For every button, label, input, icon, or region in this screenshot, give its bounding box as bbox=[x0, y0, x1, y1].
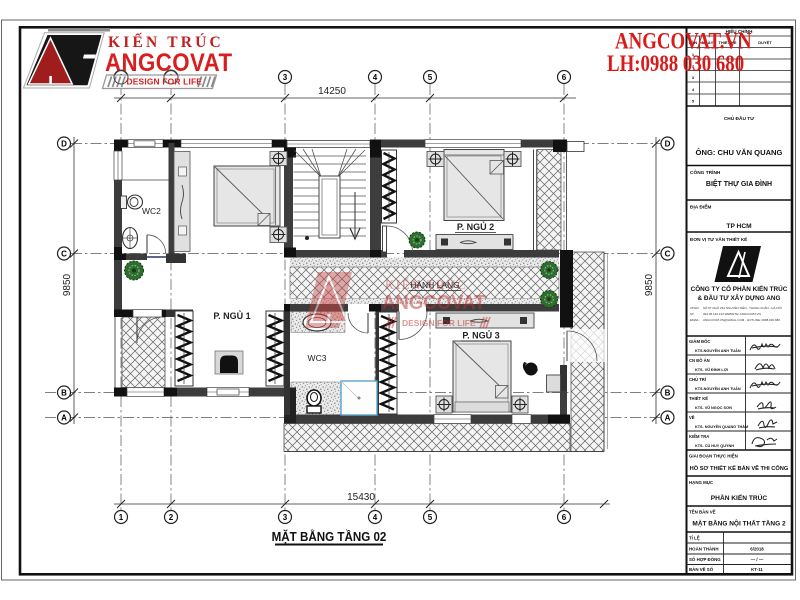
svg-text:5: 5 bbox=[428, 513, 433, 522]
svg-text:5: 5 bbox=[428, 73, 433, 82]
svg-text:KTS. CÙ HUY QUỲNH: KTS. CÙ HUY QUỲNH bbox=[695, 443, 734, 448]
svg-text:DESIGN FOR LIFE: DESIGN FOR LIFE bbox=[402, 318, 476, 328]
svg-text:ĐƠN VỊ TƯ VẤN THIẾT KẾ: ĐƠN VỊ TƯ VẤN THIẾT KẾ bbox=[690, 236, 747, 242]
svg-text:C: C bbox=[61, 250, 67, 259]
svg-text:KTS.NGUYỄN ANH TUẤN: KTS.NGUYỄN ANH TUẤN bbox=[695, 348, 741, 353]
svg-text:B: B bbox=[665, 389, 671, 398]
svg-text:EMAIL:: EMAIL: bbox=[690, 318, 700, 322]
svg-text:P. NGỦ 2: P. NGỦ 2 bbox=[457, 221, 494, 232]
svg-text:D: D bbox=[665, 140, 671, 149]
svg-text:ANGCOVAT: ANGCOVAT bbox=[105, 50, 233, 77]
svg-text:3: 3 bbox=[283, 73, 288, 82]
svg-text:6: 6 bbox=[562, 73, 567, 82]
svg-text:KIỂM TRA: KIỂM TRA bbox=[689, 434, 709, 439]
svg-text:ĐỊA ĐIỂM: ĐỊA ĐIỂM bbox=[690, 204, 711, 211]
svg-text:9850: 9850 bbox=[644, 273, 655, 296]
svg-text:A: A bbox=[665, 414, 671, 423]
svg-text:DESIGN FOR LIFE: DESIGN FOR LIFE bbox=[127, 77, 203, 87]
svg-text:KTS. NGUYỄN QUANG THẮM: KTS. NGUYỄN QUANG THẮM bbox=[695, 424, 748, 429]
svg-text:KIẾN TRÚC: KIẾN TRÚC bbox=[108, 33, 224, 51]
svg-text:1: 1 bbox=[119, 513, 124, 522]
svg-text:VẼ: VẼ bbox=[689, 415, 695, 420]
svg-text:KTS. VŨ NGỌC SƠN: KTS. VŨ NGỌC SƠN bbox=[695, 405, 732, 410]
svg-text:9850: 9850 bbox=[62, 273, 73, 296]
svg-text:HẠNG MỤC: HẠNG MỤC bbox=[689, 480, 714, 485]
svg-text:CHỦ ĐẦU TƯ: CHỦ ĐẦU TƯ bbox=[724, 115, 754, 122]
svg-text:VPGD:: VPGD: bbox=[690, 306, 700, 310]
svg-text:WC3: WC3 bbox=[308, 353, 327, 363]
svg-text:BIỆT THỰ GIA ĐÌNH: BIỆT THỰ GIA ĐÌNH bbox=[706, 179, 772, 188]
svg-text:BẢN VẼ SỐ: BẢN VẼ SỐ bbox=[689, 567, 714, 572]
svg-text:CHỦ TRÌ: CHỦ TRÌ bbox=[689, 377, 706, 382]
svg-text:LH:0988 030 680: LH:0988 030 680 bbox=[607, 50, 744, 76]
svg-text:KTS.NGUYỄN ANH TUẤN: KTS.NGUYỄN ANH TUẤN bbox=[695, 386, 741, 391]
svg-text:14250: 14250 bbox=[318, 86, 346, 97]
svg-text:THIẾT KẾ: THIẾT KẾ bbox=[689, 396, 708, 401]
svg-text:A: A bbox=[61, 414, 67, 423]
svg-text:— / —: — / — bbox=[751, 557, 764, 562]
svg-text:4: 4 bbox=[373, 73, 378, 82]
svg-text:ANGCOVAT.VN@GMAIL.COM - HOTLIN: ANGCOVAT.VN@GMAIL.COM - HOTLINE: 0988.03… bbox=[703, 318, 780, 322]
svg-text:ST:: ST: bbox=[690, 312, 695, 316]
svg-text:CN ĐỒ ÁN: CN ĐỒ ÁN bbox=[689, 358, 710, 363]
svg-text:HOÀN THÀNH: HOÀN THÀNH bbox=[689, 547, 719, 552]
svg-text:KT-11: KT-11 bbox=[751, 567, 763, 572]
svg-text:6/2018: 6/2018 bbox=[750, 547, 764, 552]
svg-text:SỐ 57 NGÕ 234 NGUYỄN XIỂN - TH: SỐ 57 NGÕ 234 NGUYỄN XIỂN - THANH XUÂN -… bbox=[703, 305, 782, 310]
svg-text:B: B bbox=[61, 389, 67, 398]
svg-text:GIAI ĐOẠN THỰC HIỆN: GIAI ĐOẠN THỰC HIỆN bbox=[689, 454, 738, 459]
svg-text:2: 2 bbox=[169, 513, 174, 522]
svg-text:3: 3 bbox=[283, 513, 288, 522]
svg-text:D: D bbox=[61, 140, 67, 149]
svg-text:P. NGỦ 3: P. NGỦ 3 bbox=[462, 330, 499, 341]
svg-text:ANGCOVAT: ANGCOVAT bbox=[382, 292, 486, 314]
svg-text:TÊN BẢN VẼ: TÊN BẢN VẼ bbox=[689, 510, 716, 515]
svg-text:6: 6 bbox=[562, 513, 567, 522]
svg-text:094.35.132.134 WEBSITE: ANGCO: 094.35.132.134 WEBSITE: ANGCOVAT.VN bbox=[703, 312, 761, 316]
svg-text:ÔNG: CHU VĂN QUANG: ÔNG: CHU VĂN QUANG bbox=[696, 148, 783, 157]
svg-text:4: 4 bbox=[373, 513, 378, 522]
svg-text:KIẾN TRÚC: KIẾN TRÚC bbox=[385, 277, 467, 292]
svg-text:SỐ HỢP ĐỒNG: SỐ HỢP ĐỒNG bbox=[689, 557, 721, 562]
svg-text:KTS. VŨ ĐÌNH LỢI: KTS. VŨ ĐÌNH LỢI bbox=[695, 367, 728, 372]
svg-text:C: C bbox=[665, 250, 671, 259]
svg-text:HỒ SƠ THIẾT KẾ BẢN VẼ THI CÔNG: HỒ SƠ THIẾT KẾ BẢN VẼ THI CÔNG bbox=[690, 464, 789, 472]
svg-text:MẶT BẰNG TẦNG 02: MẶT BẰNG TẦNG 02 bbox=[272, 528, 387, 544]
svg-text:TỈ LỆ: TỈ LỆ bbox=[689, 536, 700, 541]
svg-text:DUYỆT: DUYỆT bbox=[758, 40, 772, 45]
svg-text:TP HCM: TP HCM bbox=[726, 223, 752, 230]
svg-text:P. NGỦ 1: P. NGỦ 1 bbox=[213, 310, 250, 321]
svg-text:WC2: WC2 bbox=[142, 206, 161, 216]
svg-text:GIÁM ĐỐC: GIÁM ĐỐC bbox=[689, 339, 710, 344]
svg-text:15430: 15430 bbox=[347, 492, 375, 503]
